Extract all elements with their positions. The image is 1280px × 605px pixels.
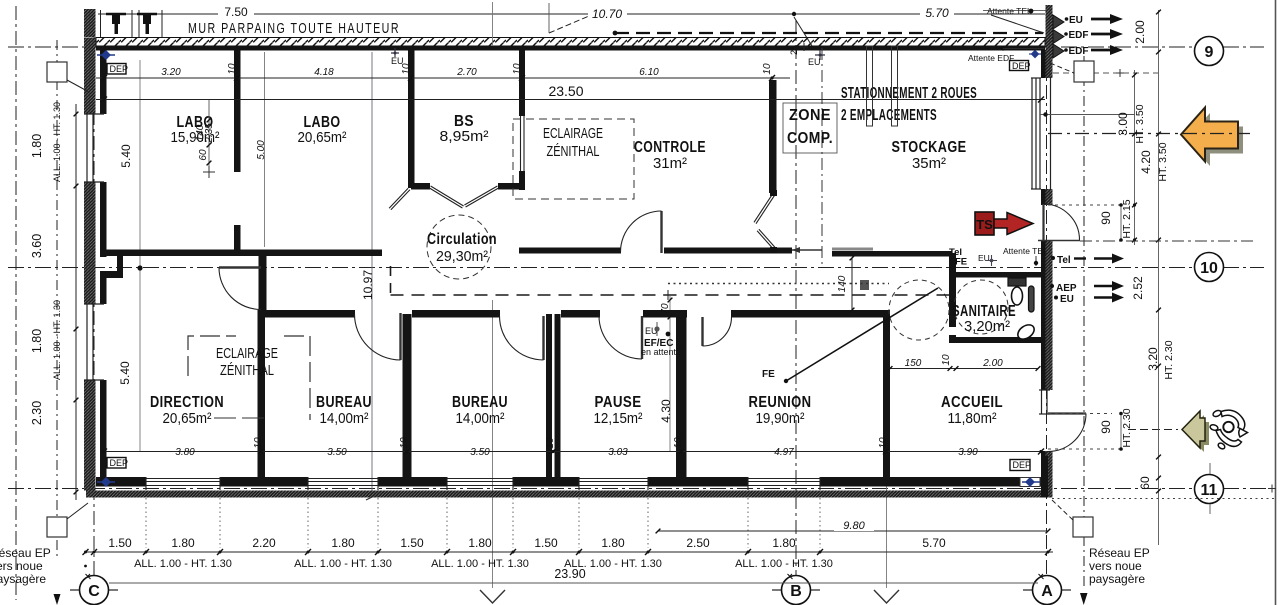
- svg-text:3.60: 3.60: [30, 234, 44, 258]
- svg-text:EU: EU: [391, 56, 404, 66]
- svg-text:60: 60: [1138, 476, 1152, 490]
- svg-text:11: 11: [1201, 482, 1218, 499]
- svg-text:1.50: 1.50: [108, 536, 132, 550]
- svg-text:C: C: [88, 583, 100, 600]
- svg-text:90: 90: [1099, 420, 1113, 434]
- svg-text:3.90: 3.90: [958, 447, 978, 458]
- svg-text:ZONE: ZONE: [789, 107, 831, 124]
- svg-text:AEP: AEP: [1056, 283, 1077, 294]
- svg-text:10: 10: [545, 437, 556, 449]
- svg-text:1.80: 1.80: [331, 536, 355, 550]
- svg-text:7.50: 7.50: [224, 5, 248, 19]
- svg-text:90: 90: [1099, 211, 1113, 225]
- svg-text:Réseau EP: Réseau EP: [0, 546, 51, 560]
- svg-text:10.97: 10.97: [361, 270, 375, 300]
- svg-text:14,00m²: 14,00m²: [456, 410, 505, 427]
- svg-text:10: 10: [399, 437, 410, 449]
- svg-text:2.50: 2.50: [686, 536, 710, 550]
- svg-text:1.80: 1.80: [601, 536, 625, 550]
- svg-text:2.00: 2.00: [1133, 20, 1147, 44]
- svg-text:9: 9: [1205, 44, 1214, 61]
- svg-text:HT. 2.30: HT. 2.30: [1121, 408, 1133, 447]
- svg-text:HT. 2.15: HT. 2.15: [1121, 199, 1133, 238]
- svg-text:ACCUEIL: ACCUEIL: [941, 394, 1003, 411]
- svg-text:STOCKAGE: STOCKAGE: [892, 139, 967, 156]
- svg-text:2.00: 2.00: [982, 358, 1003, 369]
- svg-text:1.50: 1.50: [400, 536, 424, 550]
- svg-text:2 EMPLACEMENTS: 2 EMPLACEMENTS: [841, 107, 937, 124]
- svg-text:10: 10: [512, 63, 523, 75]
- svg-text:11,80m²: 11,80m²: [948, 410, 997, 427]
- svg-text:10.70: 10.70: [592, 7, 622, 21]
- svg-text:2.20: 2.20: [252, 536, 276, 550]
- svg-text:5.00: 5.00: [256, 140, 267, 160]
- svg-text:HT. 3.50: HT. 3.50: [1157, 142, 1169, 181]
- svg-text:14,00m²: 14,00m²: [320, 410, 369, 427]
- svg-text:1.80: 1.80: [468, 536, 492, 550]
- svg-text:5.40: 5.40: [119, 144, 133, 168]
- svg-text:1.80: 1.80: [171, 536, 195, 550]
- svg-text:29,30m²: 29,30m²: [436, 248, 488, 265]
- svg-text:ALL. 1.00 - HT. 1.30: ALL. 1.00 - HT. 1.30: [52, 102, 62, 182]
- svg-text:10: 10: [762, 63, 773, 75]
- svg-text:EU: EU: [978, 253, 990, 263]
- svg-text:3,20m²: 3,20m²: [964, 318, 1010, 335]
- svg-text:HT. 2.30: HT. 2.30: [1163, 340, 1175, 379]
- svg-text:vers noue: vers noue: [1089, 559, 1142, 573]
- svg-text:3.50: 3.50: [470, 447, 490, 458]
- svg-text:ZÉNITHAL: ZÉNITHAL: [220, 362, 274, 379]
- svg-text:2.70: 2.70: [456, 67, 477, 78]
- svg-text:10: 10: [253, 437, 264, 449]
- svg-text:en attente: en attente: [641, 347, 681, 357]
- svg-text:6.10: 6.10: [639, 67, 659, 78]
- svg-text:HT. 3.50: HT. 3.50: [1134, 104, 1146, 143]
- svg-text:23.50: 23.50: [548, 83, 583, 99]
- svg-text:paysagère: paysagère: [0, 572, 46, 586]
- svg-text:1.80: 1.80: [30, 134, 44, 158]
- svg-text:5.40: 5.40: [118, 361, 132, 385]
- svg-text:EU: EU: [1069, 15, 1083, 26]
- svg-text:3.00: 3.00: [1116, 112, 1130, 136]
- svg-text:vers noue: vers noue: [0, 559, 43, 573]
- svg-text:4.18: 4.18: [314, 67, 334, 78]
- svg-text:2.35: 2.35: [204, 123, 215, 144]
- svg-text:3.50: 3.50: [327, 447, 347, 458]
- svg-text:B: B: [790, 583, 802, 600]
- svg-text:Attente TEL: Attente TEL: [1003, 246, 1048, 256]
- svg-text:20,65m²: 20,65m²: [298, 129, 347, 146]
- svg-text:DEP: DEP: [1012, 61, 1031, 71]
- svg-text:20,65m²: 20,65m²: [163, 410, 212, 427]
- svg-text:31m²: 31m²: [653, 155, 687, 172]
- svg-text:9.80: 9.80: [843, 520, 865, 532]
- svg-text:60: 60: [198, 149, 209, 161]
- svg-text:10: 10: [673, 437, 684, 449]
- svg-text:10: 10: [227, 63, 238, 75]
- svg-text:70: 70: [660, 303, 671, 315]
- svg-text:COMP.: COMP.: [787, 130, 833, 147]
- svg-text:ALL. 1.00 - HT. 1.30: ALL. 1.00 - HT. 1.30: [735, 558, 833, 570]
- svg-text:ECLAIRAGE: ECLAIRAGE: [216, 345, 278, 362]
- svg-text:150: 150: [905, 358, 922, 369]
- svg-text:3.20: 3.20: [161, 67, 181, 78]
- svg-text:3.03: 3.03: [608, 447, 628, 458]
- svg-text:EU: EU: [808, 57, 821, 67]
- svg-text:BUREAU: BUREAU: [452, 394, 508, 411]
- svg-text:Réseau EP: Réseau EP: [1089, 546, 1150, 560]
- svg-text:ALL. 1.00 - HT. 1.30: ALL. 1.00 - HT. 1.30: [431, 558, 529, 570]
- svg-text:ALL. 1.00 - HT. 1.30: ALL. 1.00 - HT. 1.30: [52, 300, 62, 380]
- svg-text:FE: FE: [762, 369, 775, 380]
- svg-text:10: 10: [941, 354, 952, 366]
- svg-text:EDF: EDF: [1069, 30, 1089, 41]
- svg-text:DEP: DEP: [110, 458, 129, 468]
- svg-text:25: 25: [789, 45, 799, 55]
- svg-text:Tel: Tel: [1057, 255, 1071, 266]
- svg-text:ALL. 1.00 - HT. 1.30: ALL. 1.00 - HT. 1.30: [294, 558, 392, 570]
- svg-text:10: 10: [878, 437, 889, 449]
- svg-text:8,95m²: 8,95m²: [440, 128, 489, 145]
- svg-text:5.70: 5.70: [922, 536, 946, 550]
- svg-text:REUNION: REUNION: [749, 394, 812, 411]
- svg-text:5.70: 5.70: [925, 6, 949, 20]
- svg-text:FE: FE: [955, 257, 967, 268]
- svg-text:Attente EDF: Attente EDF: [968, 53, 1014, 63]
- svg-text:DEP: DEP: [1013, 460, 1032, 470]
- svg-text:Circulation: Circulation: [427, 231, 497, 248]
- svg-text:4.20: 4.20: [1139, 150, 1153, 174]
- svg-text:2.52: 2.52: [1131, 276, 1145, 300]
- svg-text:3.20: 3.20: [1146, 347, 1160, 371]
- svg-text:A: A: [1041, 583, 1053, 600]
- svg-text:PAUSE: PAUSE: [595, 394, 642, 411]
- svg-text:EDF: EDF: [1069, 46, 1089, 57]
- svg-text:4.30: 4.30: [659, 399, 673, 423]
- svg-text:ECLAIRAGE: ECLAIRAGE: [543, 125, 603, 142]
- svg-text:35m²: 35m²: [912, 155, 946, 172]
- svg-text:1.80: 1.80: [30, 329, 44, 353]
- svg-text:BUREAU: BUREAU: [316, 394, 372, 411]
- svg-text:paysagère: paysagère: [1089, 572, 1145, 586]
- svg-text:ZÉNITHAL: ZÉNITHAL: [547, 143, 600, 160]
- svg-text:ALL. 1.00 - HT. 1.30: ALL. 1.00 - HT. 1.30: [134, 558, 232, 570]
- svg-text:TS: TS: [976, 217, 993, 232]
- svg-text:MUR PARPAING TOUTE HAUTEUR: MUR PARPAING TOUTE HAUTEUR: [188, 21, 400, 37]
- svg-text:DEP: DEP: [110, 64, 129, 74]
- svg-text:10: 10: [1200, 260, 1218, 277]
- svg-text:EU: EU: [1060, 294, 1074, 305]
- svg-text:3.80: 3.80: [175, 447, 195, 458]
- svg-text:1.80: 1.80: [772, 536, 796, 550]
- svg-text:2.30: 2.30: [30, 401, 44, 425]
- svg-text:12,15m²: 12,15m²: [594, 410, 643, 427]
- svg-text:4.97: 4.97: [774, 447, 794, 458]
- svg-text:23.90: 23.90: [554, 567, 585, 581]
- svg-text:Attente TEL: Attente TEL: [987, 6, 1032, 16]
- svg-text:DIRECTION: DIRECTION: [150, 394, 224, 411]
- svg-text:1.50: 1.50: [534, 536, 558, 550]
- svg-text:CONTROLE: CONTROLE: [634, 139, 706, 156]
- svg-text:19,90m²: 19,90m²: [756, 410, 805, 427]
